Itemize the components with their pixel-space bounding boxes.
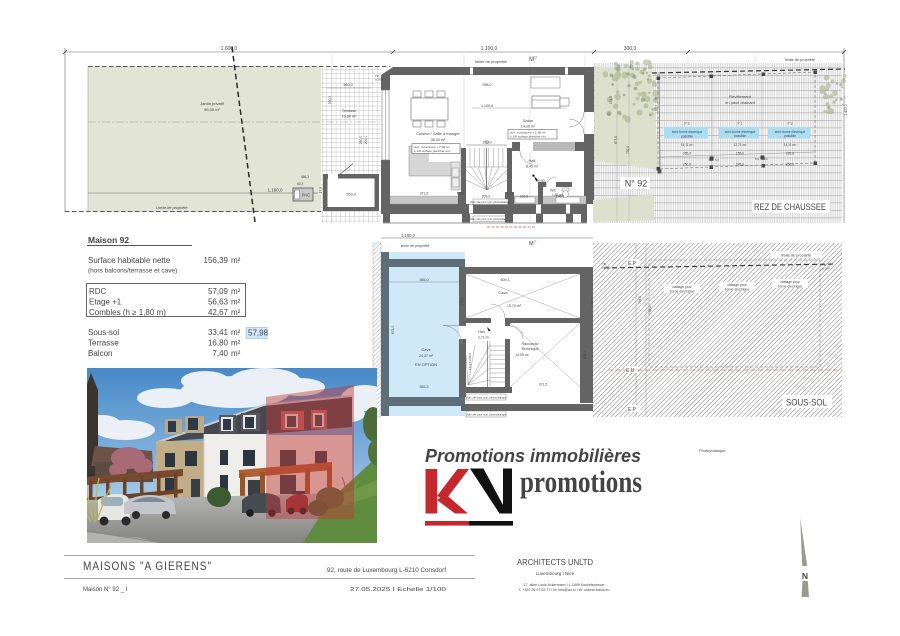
svg-text:limite de propriété: limite de propriété (781, 254, 811, 258)
svg-text:Revêtement: Revêtement (729, 94, 751, 99)
svg-text:m²: m² (231, 287, 241, 296)
svg-text:998,0: 998,0 (483, 83, 492, 87)
svg-text:possible: possible (784, 134, 796, 138)
svg-text:8,45 m²: 8,45 m² (526, 165, 539, 169)
svg-text:17,5: 17,5 (319, 187, 323, 193)
svg-text:Cave: Cave (421, 347, 431, 352)
svg-text:m²: m² (231, 308, 241, 317)
svg-text:750,0: 750,0 (626, 146, 630, 154)
svg-text:m²: m² (231, 298, 241, 307)
svg-text:Cuisine / Salle à manger: Cuisine / Salle à manger (416, 131, 460, 136)
svg-text:N: N (802, 571, 808, 581)
svg-text:1.600,0: 1.600,0 (221, 46, 238, 52)
svg-text:5,0: 5,0 (715, 158, 719, 162)
svg-text:96,09 m²: 96,09 m² (204, 107, 220, 112)
svg-text:Terrasse: Terrasse (88, 339, 119, 348)
svg-text:1.160,0: 1.160,0 (267, 188, 283, 193)
svg-text:57,09: 57,09 (208, 287, 229, 296)
svg-text:EN OPTION: EN OPTION (415, 362, 437, 367)
svg-text:Combles (h ≥ 1,80 m): Combles (h ≥ 1,80 m) (89, 308, 166, 317)
svg-text:limite de propriété: limite de propriété (475, 59, 508, 64)
svg-text:Maison 92: Maison 92 (88, 235, 129, 245)
svg-text:602,9: 602,9 (583, 351, 587, 359)
svg-text:m²: m² (231, 349, 241, 358)
svg-text:Hall: Hall (529, 158, 536, 163)
svg-text:24,37 m²: 24,37 m² (419, 354, 434, 358)
svg-text:33,41: 33,41 (208, 328, 229, 337)
svg-text:P 2: P 2 (684, 122, 689, 126)
svg-text:Cave: Cave (498, 290, 508, 295)
svg-text:borne électrique: borne électrique (670, 289, 694, 293)
svg-text:REZ DE CHAUSSEE: REZ DE CHAUSSEE (754, 202, 826, 213)
svg-text:Balcon: Balcon (88, 349, 112, 358)
svg-text:57,98: 57,98 (248, 329, 269, 338)
svg-text:265,0: 265,0 (786, 152, 794, 156)
svg-text:a 100: a 100 (822, 267, 830, 271)
svg-text:Sous-sol: Sous-sol (88, 328, 119, 337)
svg-text:14,20 m²: 14,20 m² (521, 125, 536, 129)
svg-text:794,0: 794,0 (638, 296, 642, 304)
svg-text:590,1: 590,1 (328, 96, 332, 105)
svg-text:360,0: 360,0 (343, 83, 353, 87)
svg-text:7,40: 7,40 (212, 349, 228, 358)
svg-text:209,0: 209,0 (482, 195, 491, 199)
svg-text:365,3: 365,3 (420, 385, 429, 389)
svg-text:Limite de propriété: Limite de propriété (156, 206, 187, 210)
svg-text:116,5: 116,5 (520, 195, 528, 199)
svg-text:Luxembourg I Nice: Luxembourg I Nice (536, 571, 575, 576)
svg-text:PAC: PAC (302, 193, 310, 198)
svg-text:258,0: 258,0 (460, 298, 464, 306)
svg-text:Technique: Technique (521, 347, 538, 351)
svg-text:borne électrique: borne électrique (778, 284, 802, 288)
svg-text:14,95 m²: 14,95 m² (515, 353, 529, 357)
svg-text:17,5: 17,5 (507, 192, 514, 196)
svg-text:Maison N° 92 _ I: Maison N° 92 _ I (83, 587, 128, 593)
svg-text:a 100: a 100 (375, 78, 383, 82)
svg-text:250,0: 250,0 (786, 163, 794, 167)
svg-text:17,5: 17,5 (457, 192, 464, 196)
svg-text:15,79 m²: 15,79 m² (507, 304, 522, 308)
svg-text:SOUS-SOL: SOUS-SOL (786, 398, 827, 409)
svg-text:en pavé drainant: en pavé drainant (725, 100, 756, 105)
svg-text:E.U: E.U (626, 368, 635, 374)
svg-text:ARCHITECTS UNLTD: ARCHITECTS UNLTD (517, 558, 593, 567)
svg-text:Promotions immobilières: Promotions immobilières (425, 446, 641, 466)
svg-text:14x17,2/28,0: 14x17,2/28,0 (468, 352, 472, 370)
svg-text:209,0: 209,0 (483, 141, 492, 145)
svg-text:260,0: 260,0 (359, 136, 363, 145)
svg-text:Etage +1: Etage +1 (89, 298, 122, 307)
svg-text:14,11 m²: 14,11 m² (681, 143, 695, 147)
svg-text:56,63: 56,63 (208, 298, 229, 307)
svg-text:RDC: RDC (89, 287, 107, 296)
svg-text:Vide créé pour syst. photovolt: Vide créé pour syst. photovoltaïque (470, 200, 511, 204)
svg-text:2,71 m²: 2,71 m² (478, 336, 490, 340)
svg-text:T: +352 26 97 62 77 I M: i: T: +352 26 97 62 77 I M: info@au.lu I W:… (519, 588, 610, 592)
svg-text:Salon: Salon (523, 118, 533, 123)
svg-text:m²: m² (231, 256, 241, 265)
svg-text:92, route de Luxembourg L-6210: 92, route de Luxembourg L-6210 Consdorf (327, 567, 446, 574)
svg-text:Vide créé pour syst. photovolt: Vide créé pour syst. photovoltaïque (466, 412, 507, 416)
svg-text:Raccords/: Raccords/ (521, 342, 539, 346)
svg-text:156,39: 156,39 (204, 256, 229, 265)
svg-text:Vide créé pour syst. photovolt: Vide créé pour syst. photovoltaïque (466, 395, 507, 399)
svg-text:14,11 m²: 14,11 m² (784, 143, 798, 147)
svg-text:Vide créé pour syst. photovolt: Vide créé pour syst. photovoltaïque (470, 217, 511, 221)
svg-text:245,0: 245,0 (736, 163, 744, 167)
svg-text:Jardin privatif: Jardin privatif (200, 101, 225, 106)
svg-text:a 100: a 100 (602, 266, 610, 270)
svg-text:12,71 m²: 12,71 m² (733, 143, 747, 147)
svg-text:5,0: 5,0 (755, 157, 759, 161)
svg-text:limite de propriété: limite de propriété (785, 58, 815, 62)
svg-text:N° 92: N° 92 (625, 179, 648, 189)
svg-text:250,0: 250,0 (683, 163, 691, 167)
svg-text:Terrasse: Terrasse (342, 109, 357, 113)
svg-text:265,0: 265,0 (683, 152, 691, 156)
svg-text:MAISONS "A GIERENS": MAISONS "A GIERENS" (83, 559, 212, 573)
svg-text:limite de propriété: limite de propriété (401, 244, 430, 248)
svg-text:P 3: P 3 (787, 122, 792, 126)
svg-text:609,3: 609,3 (501, 278, 510, 282)
svg-text:Hall: Hall (478, 330, 485, 334)
svg-text:1.100,0: 1.100,0 (481, 46, 498, 52)
svg-text:174,0: 174,0 (609, 96, 613, 104)
svg-text:269,0: 269,0 (346, 193, 356, 197)
svg-text:371,5: 371,5 (539, 383, 548, 387)
svg-text:≥ 1/8 surface plancher net: ≥ 1/8 surface plancher net (510, 135, 546, 139)
svg-text:WC: WC (550, 189, 557, 193)
svg-text:m²: m² (231, 328, 241, 337)
svg-text:36,04 m²: 36,04 m² (431, 138, 446, 142)
svg-text:(hors balcons/terrasse et cave: (hors balcons/terrasse et cave) (88, 268, 177, 275)
svg-text:17, allée Louis Ackermann I: 17, allée Louis Ackermann I L-1899 Kocke… (524, 583, 606, 587)
svg-text:≥ 1/8 surface plancher net: ≥ 1/8 surface plancher net (414, 149, 450, 153)
svg-text:E.P: E.P (628, 407, 637, 413)
svg-text:1.100,0: 1.100,0 (481, 104, 493, 108)
svg-text:16,80 m²: 16,80 m² (342, 115, 358, 119)
svg-text:196,0: 196,0 (556, 195, 565, 199)
svg-text:borne électrique: borne électrique (725, 287, 749, 291)
svg-text:m²: m² (231, 339, 241, 348)
svg-text:possible: possible (734, 134, 746, 138)
svg-text:16,80: 16,80 (208, 339, 229, 348)
svg-text:371,5: 371,5 (420, 192, 429, 196)
svg-text:promotions: promotions (520, 464, 642, 499)
svg-text:365,0: 365,0 (420, 278, 429, 282)
svg-text:E.P: E.P (628, 261, 637, 267)
svg-text:255,0: 255,0 (736, 152, 744, 156)
svg-text:Photovoltaique: Photovoltaique (699, 448, 726, 453)
svg-text:60,3: 60,3 (297, 182, 303, 186)
svg-text:200,0: 200,0 (364, 136, 368, 145)
svg-text:Surface habitable nette: Surface habitable nette (88, 256, 171, 265)
svg-text:possible: possible (681, 134, 693, 138)
svg-text:656,3: 656,3 (301, 175, 309, 179)
svg-text:P 1: P 1 (737, 122, 742, 126)
svg-text:300,0: 300,0 (624, 46, 637, 52)
svg-text:1.100,0: 1.100,0 (401, 233, 416, 238)
svg-text:673,0: 673,0 (391, 326, 395, 335)
svg-text:27.05.2025 I Echelle 1/1: 27.05.2025 I Echelle 1/100 (350, 587, 446, 593)
svg-text:673,0: 673,0 (614, 136, 618, 144)
svg-text:768,0: 768,0 (648, 306, 652, 314)
svg-text:1.400,0: 1.400,0 (844, 104, 848, 115)
svg-text:42,67: 42,67 (208, 308, 229, 317)
